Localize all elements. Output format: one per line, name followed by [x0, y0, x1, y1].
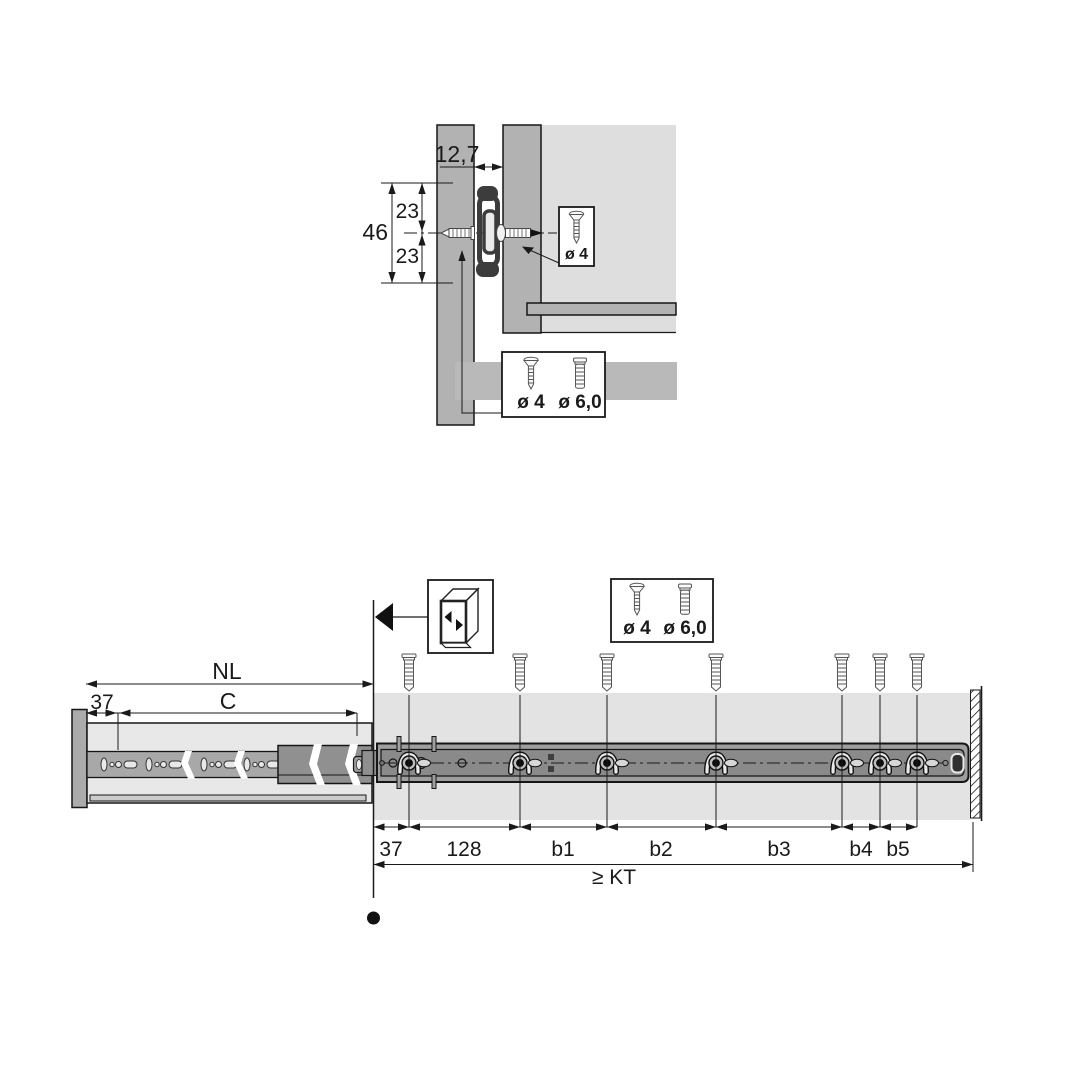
- side-screw-label: ø 4: [565, 246, 588, 263]
- mounting-screw-icon: [835, 654, 849, 691]
- dim-kt: ≥ KT: [592, 866, 636, 889]
- drawer-assembly: [72, 710, 372, 808]
- mounting-screw-icon: [402, 654, 416, 691]
- dim-seg-1: 128: [446, 838, 481, 861]
- pan-head-screw-icon: [574, 358, 587, 388]
- dim-lower-hole: 23: [396, 245, 419, 268]
- slide-profile-cross-section: [476, 186, 499, 277]
- rail-end-slot: [952, 754, 964, 773]
- cabinet-back-wall: [971, 686, 982, 821]
- screw-small-label: ø 4: [517, 392, 545, 413]
- mounting-screws: [402, 654, 924, 691]
- screw-large-label: ø 6,0: [663, 618, 706, 639]
- drawer-bottom-panel: [90, 795, 366, 801]
- hole-spacing-dimensions: 37 128 b1 b2 b3 b4 b5: [374, 823, 918, 861]
- reference-dot: [367, 912, 380, 925]
- dim-upper-hole: 23: [396, 200, 419, 223]
- mounting-screw-icon: [709, 654, 723, 691]
- dim-seg-2: b1: [551, 838, 574, 861]
- dim-total-height: 46: [362, 219, 388, 245]
- drawer-front-panel: [72, 710, 87, 808]
- rail-screw-spec-box: ø 4 ø 6,0: [611, 579, 713, 642]
- pan-head-screw-icon: [679, 584, 692, 614]
- dim-seg-4: b3: [767, 838, 790, 861]
- mounting-screw-icon: [910, 654, 924, 691]
- front-edge-marker-icon: [375, 603, 393, 631]
- mounting-screw-icon: [600, 654, 614, 691]
- mounting-screw-icon: [513, 654, 527, 691]
- technical-drawing-page: 46 23 23 12,7: [0, 0, 1080, 1080]
- side-view-rail-mounting: NL 37 C: [72, 579, 982, 925]
- dim-seg-0: 37: [379, 838, 402, 861]
- screw-small-label: ø 4: [623, 618, 651, 639]
- top-view-cross-section: 46 23 23 12,7: [362, 125, 677, 425]
- screw-large-label: ø 6,0: [558, 392, 601, 413]
- dim-c: C: [220, 688, 237, 714]
- gap-dimension: 12,7: [435, 141, 503, 171]
- mounted-rail-bar: [527, 303, 676, 315]
- cabinet-rail: [362, 737, 969, 789]
- mounting-screw-icon: [873, 654, 887, 691]
- dim-front-offset: 37: [90, 691, 113, 714]
- dim-seg-3: b2: [649, 838, 672, 861]
- drawer-slide-installation-diagram: 46 23 23 12,7: [0, 0, 1080, 1080]
- dim-seg-5: b4: [849, 838, 873, 861]
- dim-nl: NL: [212, 658, 242, 684]
- dim-gap: 12,7: [435, 141, 480, 167]
- dim-seg-6: b5: [886, 838, 909, 861]
